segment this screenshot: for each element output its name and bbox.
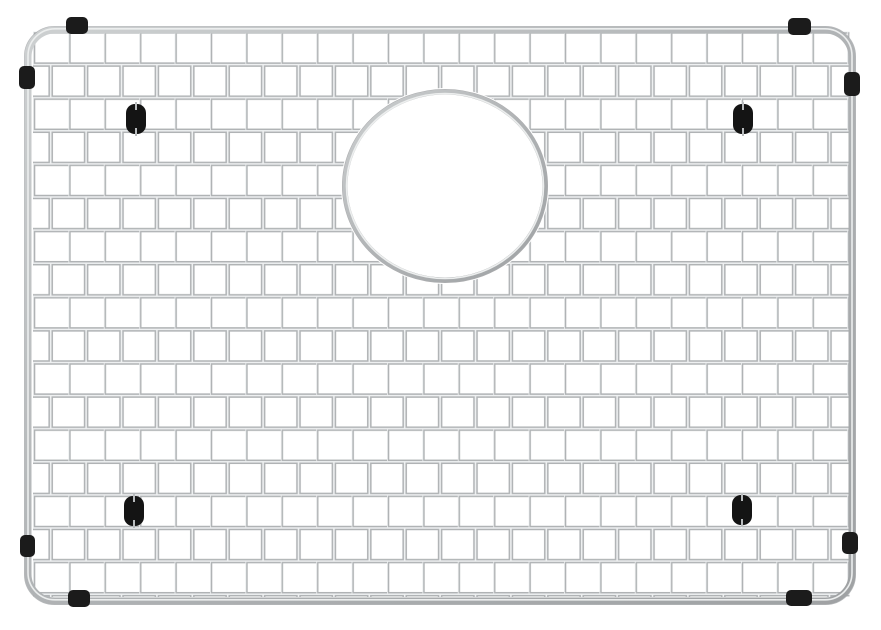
bumper-bottom-left-bottom [68,590,90,607]
bumper-top-right-top [788,18,811,35]
bumper-top-left-side [19,66,35,89]
foot-top-right [733,102,753,136]
drain-opening-ring [343,90,548,283]
bumper-bottom-left-side [20,535,35,557]
bumper-bottom-right-side [842,532,858,554]
bumper-top-left-top [66,17,88,34]
product-photo [0,0,881,630]
bumper-bottom-right-bottom [786,590,812,606]
bumper-top-right-side [844,72,860,96]
foot-bottom-left [124,494,144,528]
foot-bottom-right [732,493,752,527]
sink-grid-illustration [0,0,881,630]
foot-top-left [126,102,146,136]
